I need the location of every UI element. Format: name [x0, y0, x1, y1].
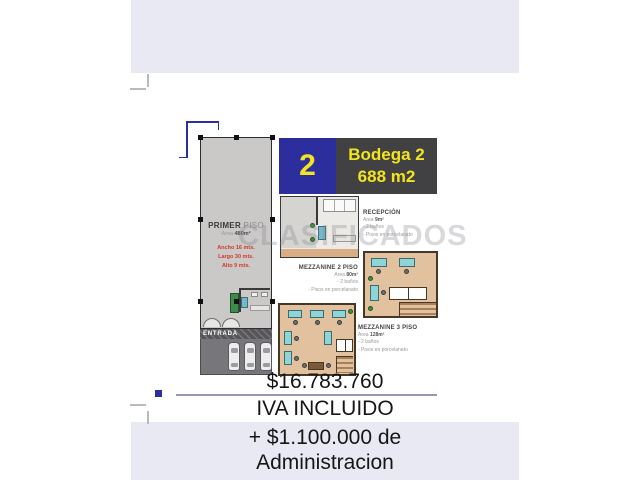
chair-icon [302, 363, 307, 368]
desk-icon [284, 331, 292, 345]
corner-bracket [179, 157, 188, 159]
dimension-line: Alto 9 mts. [200, 262, 272, 271]
desk-icon [370, 285, 379, 301]
chair-icon [294, 336, 299, 341]
mezzanine-3-plan [278, 303, 356, 376]
mezzanine-3-note-feature: - Pisos en porcelanato [358, 347, 438, 354]
mezzanine-2-plan [363, 251, 438, 318]
car-icon [244, 342, 256, 371]
admin-fee-line1: + $1.100.000 de [131, 426, 519, 450]
primer-piso-area: Area 480m² [200, 231, 272, 237]
door-arc-icon [203, 318, 221, 327]
mezzanine-3-note: MEZZANINE 3 PISO Area 128m² - 2 baños - … [358, 325, 438, 354]
desk-icon [371, 258, 387, 267]
recepcion-note: RECEPCIÓN Area 9m² - 2 baños - Pisos en … [363, 210, 438, 239]
car-rear-window [263, 363, 271, 367]
selection-handle[interactable] [198, 135, 203, 140]
car-icon [260, 342, 272, 371]
bodega-title-block: Bodega 2 688 m2 [336, 138, 437, 194]
chair-icon [381, 290, 386, 295]
fixture-icon [261, 292, 268, 297]
desk-icon [399, 258, 415, 267]
floor-strip [281, 249, 358, 257]
car-icon [228, 342, 240, 371]
recepcion-note-feature: - Pisos en porcelanato [363, 232, 438, 239]
corner-bracket [186, 121, 219, 123]
wall-icon [316, 197, 318, 225]
plant-icon [310, 237, 315, 242]
table-icon [308, 362, 324, 370]
mezzanine-3-note-feature: - 2 baños [358, 339, 438, 346]
bodega-area: 688 m2 [358, 166, 416, 188]
recepcion-plan [280, 196, 359, 258]
bathroom-divider [344, 200, 345, 211]
bathroom-icon [323, 199, 356, 212]
price-divider [176, 394, 437, 396]
selection-handle[interactable] [234, 299, 239, 304]
mezzanine-2-note-feature: - 2 baños [288, 279, 358, 286]
plant-icon [368, 276, 373, 281]
plant-icon [368, 306, 373, 311]
crop-mark [147, 74, 149, 87]
mezzanine-3-note-title: MEZZANINE 3 PISO [358, 325, 438, 331]
selection-handle[interactable] [270, 299, 275, 304]
counter-icon [250, 305, 270, 311]
door-arc-icon [222, 318, 240, 327]
selection-handle[interactable] [234, 135, 239, 140]
stairs-icon [399, 302, 436, 316]
bathroom-icon [389, 287, 427, 300]
plant-icon [348, 309, 353, 314]
bodega-title: Bodega 2 [348, 144, 425, 166]
chair-icon [404, 269, 409, 274]
mezzanine-2-note-title: MEZZANINE 2 PISO [288, 265, 358, 271]
chair-icon [293, 320, 298, 325]
recepcion-note-area: Area 9m² [363, 217, 438, 224]
corner-bracket [186, 121, 188, 158]
top-band [131, 0, 519, 73]
chair-icon [294, 356, 299, 361]
plant-icon [310, 223, 315, 228]
cabinet-icon [318, 226, 326, 240]
car-windshield [263, 348, 271, 353]
desk-icon [284, 351, 292, 365]
mezzanine-2-note-feature: - Pisos en porcelanato [288, 287, 358, 294]
dimension-line: Ancho 16 mts. [200, 244, 272, 253]
selection-handle[interactable] [198, 299, 203, 304]
desk-icon [310, 310, 324, 318]
entrada-band: ENTRADA [200, 329, 272, 339]
primer-piso-dimensions: Ancho 16 mts. Largo 30 mts. Alto 9 mts. [200, 244, 272, 270]
mezzanine-2-note: MEZZANINE 2 PISO Area 80m² - 2 baños - P… [288, 265, 358, 294]
car-windshield [247, 348, 255, 353]
bathroom-divider [334, 200, 335, 211]
recepcion-note-title: RECEPCIÓN [363, 210, 438, 216]
counter-icon [333, 235, 356, 242]
crop-mark [130, 88, 146, 90]
listing-image: PRIMER PISO Area 480m² Ancho 16 mts. Lar… [0, 0, 640, 480]
fixture-icon [251, 292, 258, 297]
car-rear-window [231, 363, 239, 367]
recepcion-note-feature: - 2 baños [363, 224, 438, 231]
chair-icon [337, 320, 342, 325]
desk-icon [324, 331, 332, 345]
bodega-number: 2 [279, 138, 336, 194]
bullet-square-icon [155, 390, 162, 397]
chair-icon [376, 269, 381, 274]
bathroom-divider [408, 288, 409, 299]
hatch-pattern [200, 329, 272, 339]
bodega-banner: 2 Bodega 2 688 m2 [279, 138, 437, 194]
wall-icon [239, 288, 270, 290]
admin-fee-line2: Administracion [131, 451, 519, 475]
bathroom-icon [336, 339, 353, 352]
desk-icon [288, 310, 302, 318]
car-windshield [231, 348, 239, 353]
dimension-line: Largo 30 mts. [200, 253, 272, 262]
selection-handle[interactable] [270, 135, 275, 140]
bathroom-divider [345, 340, 346, 351]
corner-bracket [218, 121, 220, 130]
car-rear-window [247, 363, 255, 367]
chair-icon [326, 363, 331, 368]
primer-piso-title: PRIMER PISO [200, 221, 272, 230]
mezzanine-2-note-area: Area 80m² [288, 272, 358, 279]
mezzanine-3-note-area: Area 128m² [358, 332, 438, 339]
desk-icon [332, 310, 346, 318]
price-text: $16.783.760 [131, 370, 519, 394]
tax-note-text: IVA INCLUIDO [131, 397, 519, 421]
chair-icon [315, 320, 320, 325]
primer-piso-labels: PRIMER PISO Area 480m² Ancho 16 mts. Lar… [200, 221, 272, 270]
cabinet-icon [241, 297, 248, 308]
